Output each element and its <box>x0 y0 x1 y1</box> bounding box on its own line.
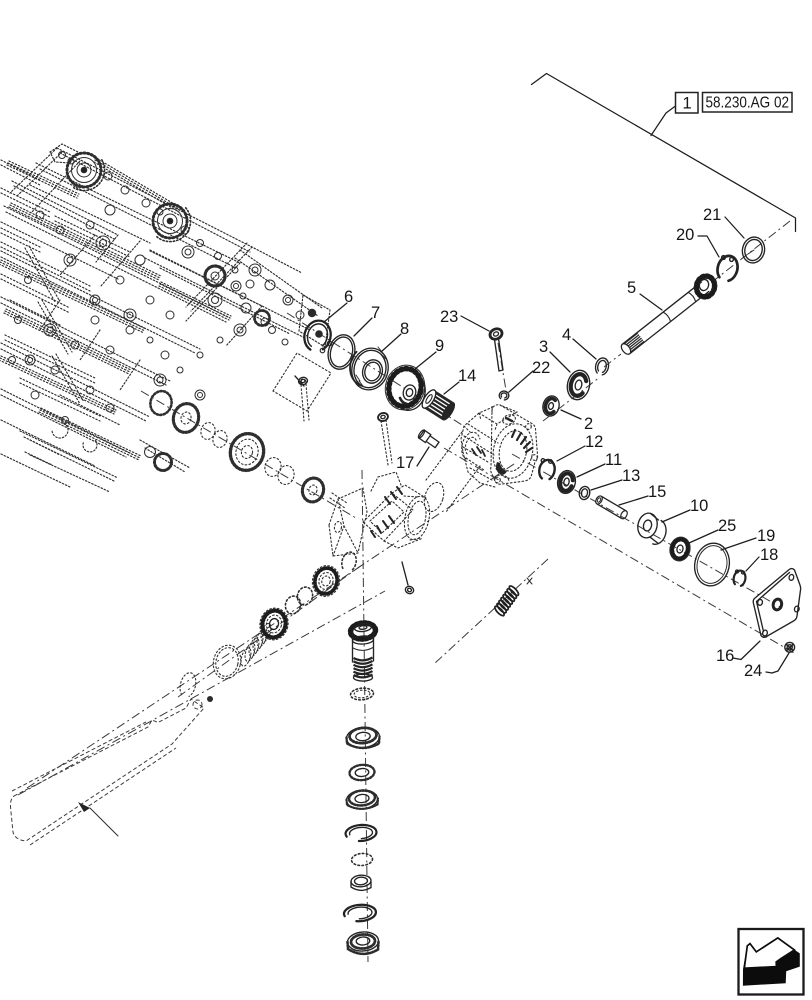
svg-text:17: 17 <box>396 454 414 472</box>
svg-text:58.230.AG 02: 58.230.AG 02 <box>706 95 790 112</box>
svg-text:3: 3 <box>539 338 548 356</box>
svg-text:16: 16 <box>716 647 734 665</box>
svg-text:22: 22 <box>532 359 550 377</box>
svg-text:5: 5 <box>627 279 636 297</box>
svg-text:6: 6 <box>344 288 353 306</box>
svg-text:11: 11 <box>605 451 622 469</box>
svg-text:12: 12 <box>585 433 603 451</box>
svg-text:15: 15 <box>648 483 666 501</box>
svg-text:23: 23 <box>440 308 458 326</box>
svg-text:13: 13 <box>622 467 640 485</box>
svg-text:21: 21 <box>703 206 721 224</box>
svg-text:19: 19 <box>757 527 775 545</box>
svg-text:4: 4 <box>562 326 571 344</box>
svg-text:24: 24 <box>744 662 762 680</box>
svg-text:8: 8 <box>400 320 409 338</box>
svg-text:1: 1 <box>683 95 692 113</box>
svg-text:2: 2 <box>584 415 593 433</box>
svg-text:18: 18 <box>760 546 778 564</box>
svg-text:14: 14 <box>458 367 476 385</box>
svg-text:10: 10 <box>690 497 708 515</box>
svg-text:25: 25 <box>718 517 736 535</box>
svg-text:7: 7 <box>371 304 380 322</box>
svg-text:20: 20 <box>676 226 694 244</box>
